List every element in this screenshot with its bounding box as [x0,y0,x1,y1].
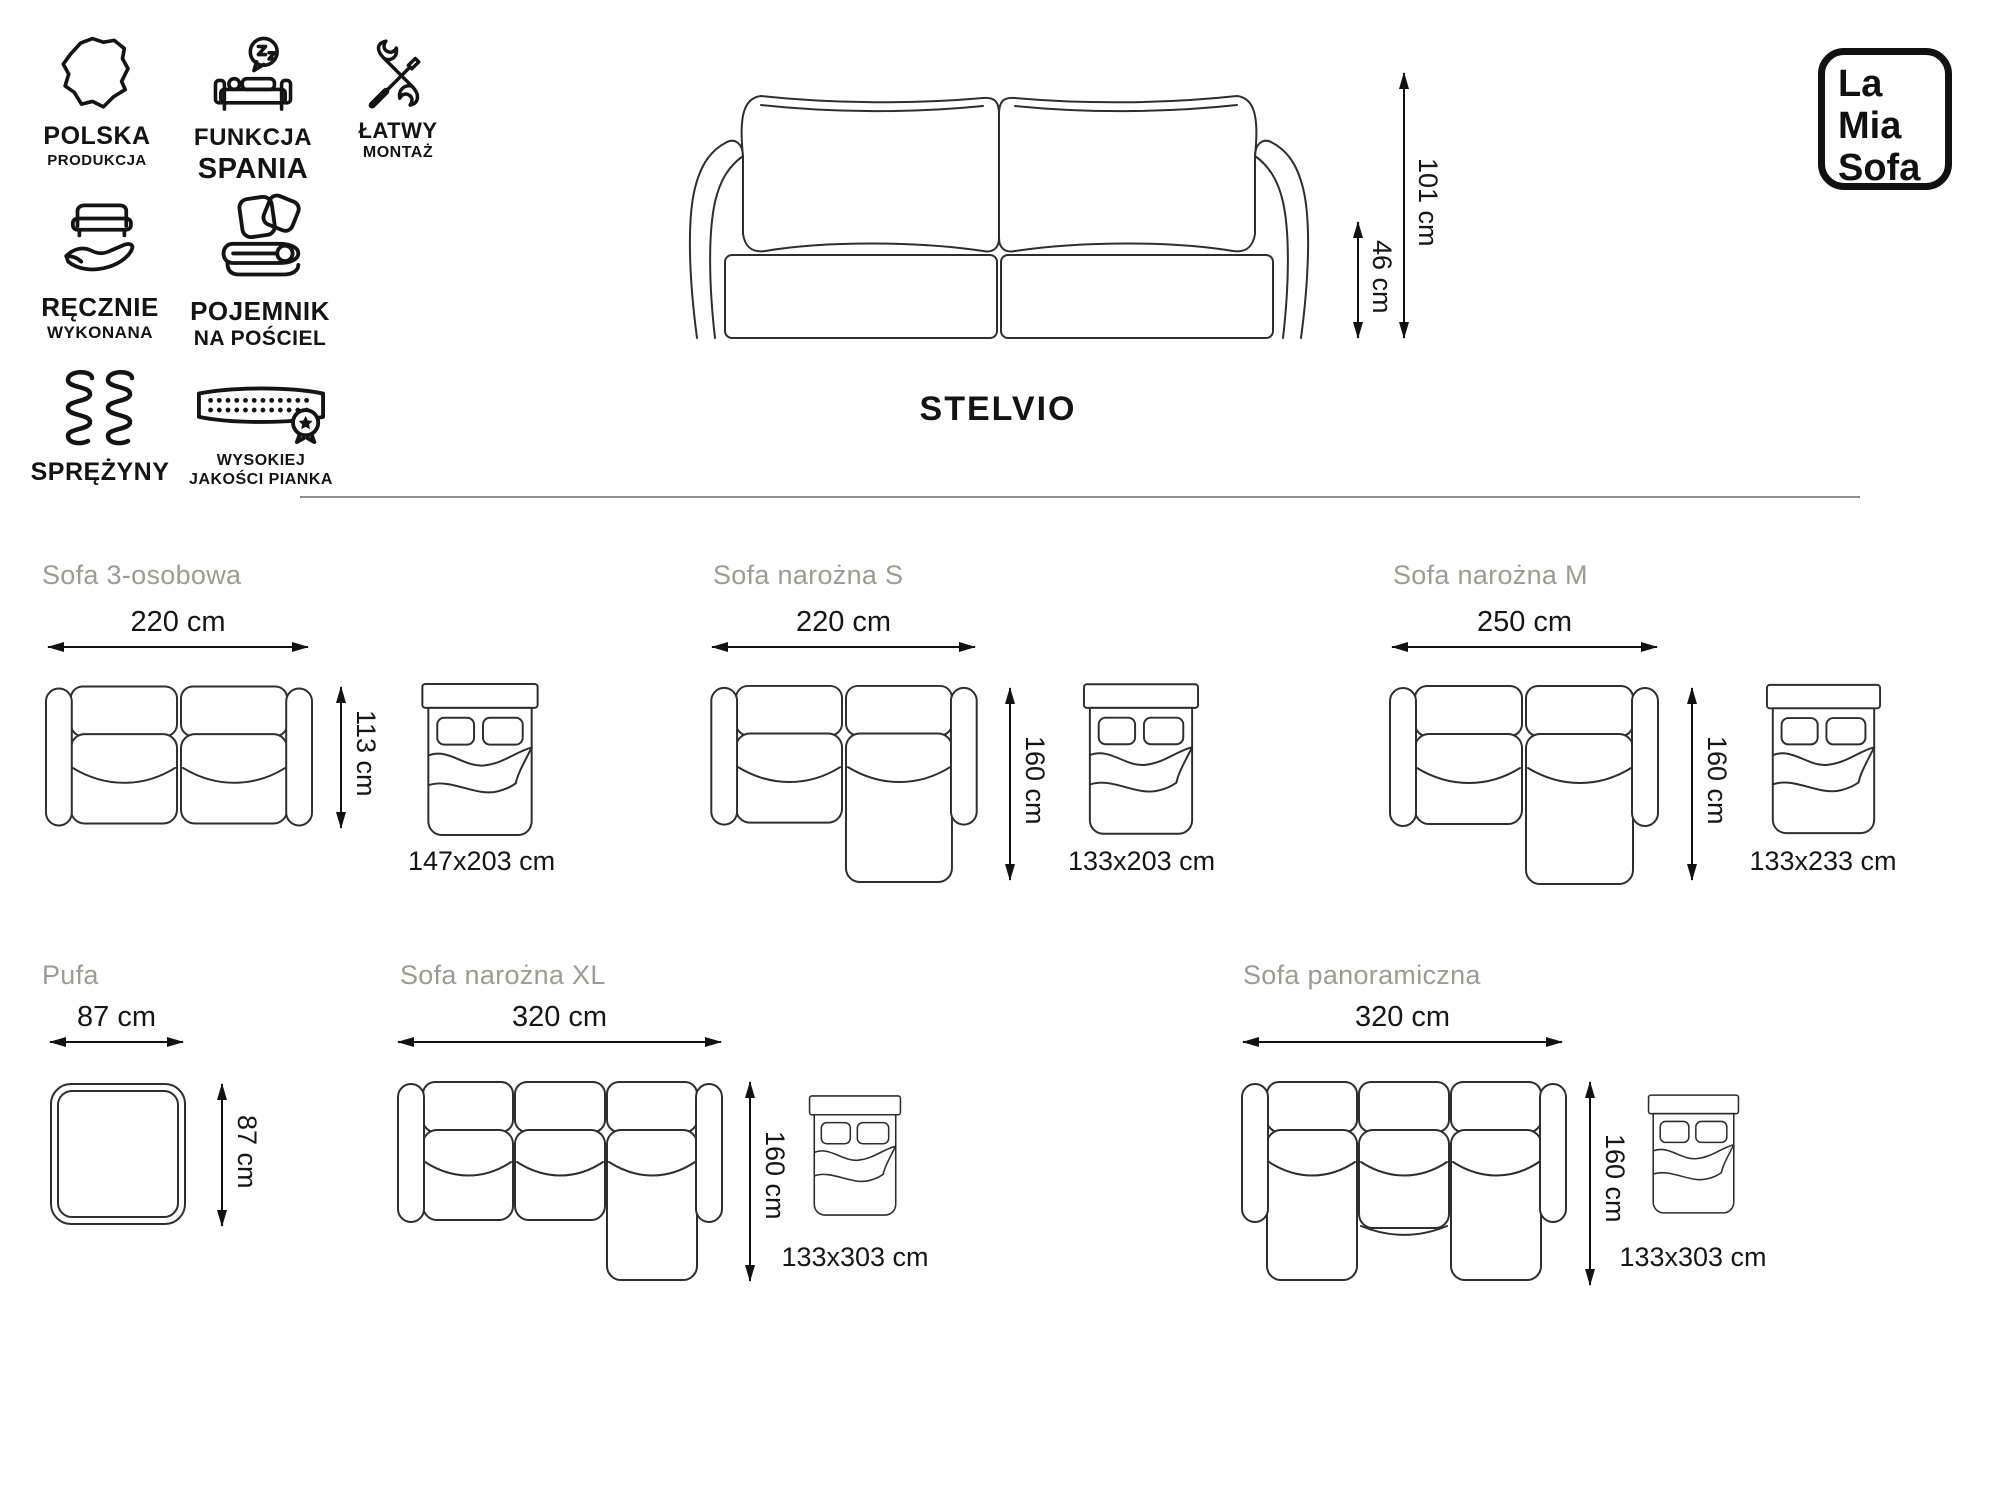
variant-6-depth-arrow [1589,1082,1591,1285]
variant-5-width-arrow [398,1041,721,1043]
feature-sublabel: MONTAŻ [363,144,433,163]
handmade-icon [54,196,146,286]
feature-latwy-montaz: ŁATWY MONTAŻ [338,36,458,163]
feature-funkcja-spania: FUNKCJA SPANIA [183,34,323,187]
variant-4-width-arrow [50,1041,183,1043]
variant-6-depth-label: 160 cm [1599,1134,1630,1223]
variant-3-bed-icon [1765,682,1882,836]
variant-1-depth-arrow [340,687,342,828]
variant-5-width-label: 320 cm [398,1001,721,1034]
la-mia-sofa-logo: La Mia Sofa [1818,48,1952,190]
variant-1-width-label: 220 cm [78,606,278,639]
variant-4-width-label: 87 cm [50,1001,183,1034]
total-height-arrow [1403,73,1405,338]
logo-line-3: Sofa [1838,147,1945,189]
feature-label: RĘCZNIE [41,292,159,323]
variant-5-title: Sofa narożna XL [400,960,606,991]
variant-6-topview-drawing [1240,1076,1568,1288]
variant-2-topview-drawing [708,680,980,886]
variant-2-width-label: 220 cm [712,606,975,639]
feature-pojemnik-na-posciel: POJEMNIK NA POŚCIEL [180,190,340,351]
variant-4-topview-drawing [48,1078,188,1230]
seat-height-label: 46 cm [1366,240,1397,314]
variant-1-depth-label: 113 cm [350,710,381,797]
sofa-front-view-drawing [665,42,1333,342]
feature-polska-produkcja: POLSKA PRODUKCJA [27,34,167,169]
variant-1-bed-icon [420,682,540,837]
feature-sublabel: PRODUKCJA [47,152,147,170]
variant-1-topview-drawing [44,680,314,834]
variant-6-bed-size: 133x303 cm [1619,1242,1767,1273]
feature-label: POJEMNIK [190,296,330,327]
variant-2-bed-icon [1082,682,1200,836]
variant-6-title: Sofa panoramiczna [1243,960,1481,991]
variant-4-depth-arrow [221,1084,223,1226]
variant-3-depth-arrow [1691,688,1693,880]
variant-2-bed-size: 133x203 cm [1068,846,1214,877]
feature-label: POLSKA [43,122,150,152]
feature-label: WYSOKIEJ [217,452,305,471]
spec-sheet: POLSKA PRODUKCJA FUNKCJA SPANIA ŁATWY [0,0,2000,1500]
variant-2-width-arrow [712,646,975,648]
product-name: STELVIO [798,390,1198,429]
variant-3-width-label: 250 cm [1392,606,1657,639]
variant-2-depth-arrow [1009,688,1011,880]
feature-sublabel: SPANIA [198,152,308,186]
variant-4-title: Pufa [42,960,99,991]
variant-3-width-arrow [1392,646,1657,648]
bedding-storage-icon [214,190,306,290]
seat-height-arrow [1357,222,1359,338]
feature-recznie-wykonana: RĘCZNIE WYKONANA [25,196,175,343]
variant-1-bed-size: 147x203 cm [408,846,553,877]
variant-4-depth-label: 87 cm [231,1115,262,1189]
springs-icon [60,368,140,450]
quality-foam-icon [191,380,331,444]
feature-wysokiej-jakosci-pianka: WYSOKIEJ JAKOŚCI PIANKA [172,380,350,490]
poland-map-icon [55,34,139,116]
feature-sublabel: NA POŚCIEL [194,327,327,352]
feature-sublabel: JAKOŚCI PIANKA [189,471,333,490]
variant-2-depth-label: 160 cm [1019,736,1050,825]
easy-assembly-icon [360,36,436,112]
variant-5-depth-label: 160 cm [759,1131,790,1220]
feature-label: FUNKCJA [194,124,312,152]
variant-5-topview-drawing [396,1076,724,1284]
variant-5-bed-size: 133x303 cm [781,1242,929,1273]
sleep-function-icon [210,34,296,118]
feature-label: SPRĘŻYNY [31,458,170,488]
total-height-label: 101 cm [1412,158,1443,247]
variant-5-depth-arrow [749,1082,751,1281]
variant-5-bed-icon [808,1078,902,1233]
feature-label: ŁATWY [358,118,437,144]
variant-1-title: Sofa 3-osobowa [42,560,241,591]
feature-sublabel: WYKONANA [47,323,153,343]
logo-line-2: Mia [1838,105,1945,147]
variant-3-topview-drawing [1388,680,1660,888]
variant-6-width-label: 320 cm [1243,1001,1562,1034]
variant-6-width-arrow [1243,1041,1562,1043]
feature-sprezyny: SPRĘŻYNY [25,368,175,488]
variant-2-title: Sofa narożna S [713,560,903,591]
variant-3-depth-label: 160 cm [1701,736,1732,825]
section-divider [300,496,1860,498]
variant-3-bed-size: 133x233 cm [1749,846,1897,877]
logo-line-1: La [1838,63,1945,105]
variant-6-bed-icon [1647,1078,1740,1230]
variant-1-width-arrow [48,646,308,648]
variant-3-title: Sofa narożna M [1393,560,1588,591]
